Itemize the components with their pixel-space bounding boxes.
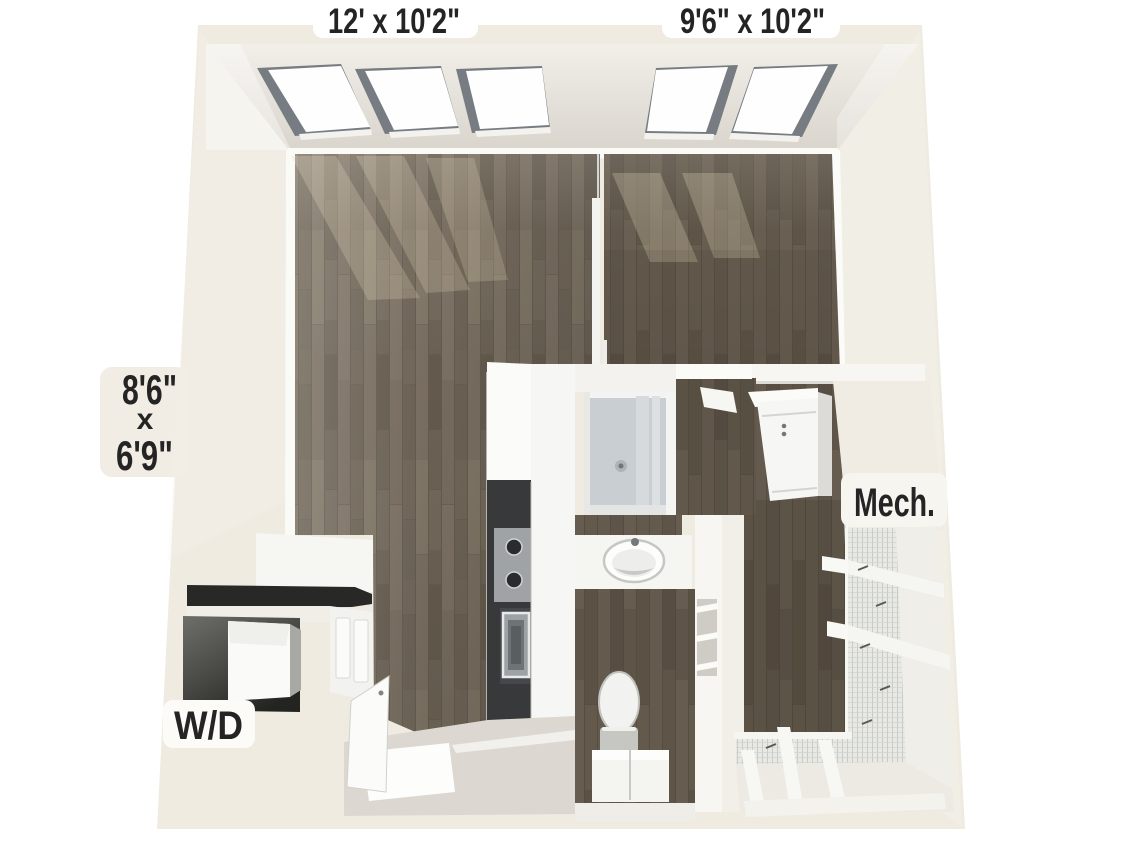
svg-text:6'9": 6'9" — [116, 432, 173, 479]
svg-text:W/D: W/D — [174, 704, 243, 748]
svg-text:Mech.: Mech. — [854, 481, 935, 525]
svg-text:9'6" x 10'2": 9'6" x 10'2" — [680, 2, 825, 41]
svg-text:12' x 10'2": 12' x 10'2" — [328, 2, 460, 41]
